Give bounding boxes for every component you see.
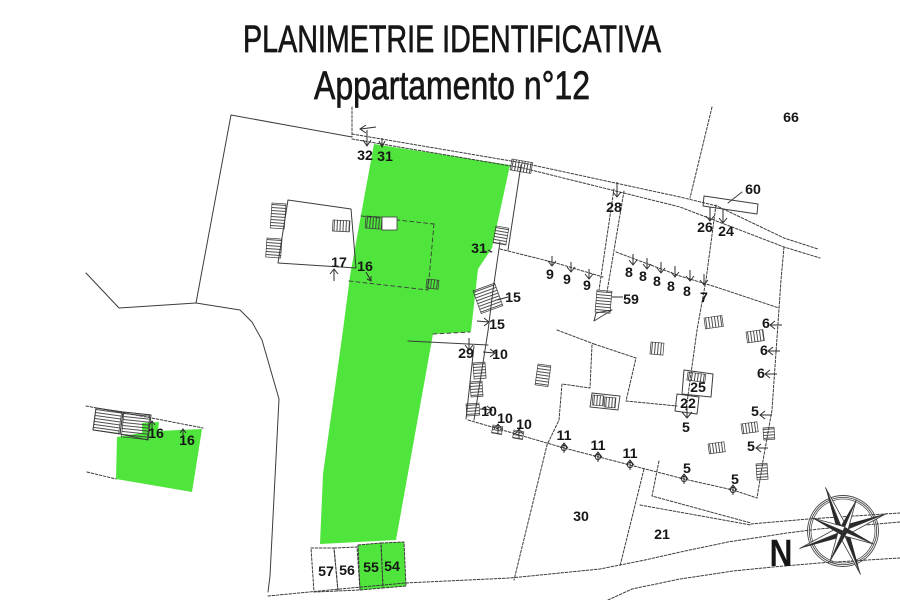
svg-text:22: 22 [680, 396, 696, 412]
svg-text:10: 10 [516, 417, 532, 433]
svg-text:Appartamento n°12: Appartamento n°12 [314, 64, 590, 108]
svg-text:16: 16 [179, 433, 195, 449]
svg-text:11: 11 [623, 446, 638, 462]
svg-text:N: N [770, 533, 793, 575]
svg-text:8: 8 [653, 274, 661, 290]
svg-text:9: 9 [563, 272, 571, 288]
svg-text:6: 6 [762, 316, 770, 332]
svg-text:10: 10 [481, 404, 497, 420]
svg-text:59: 59 [623, 292, 639, 308]
svg-text:31: 31 [377, 149, 393, 165]
svg-text:30: 30 [573, 509, 589, 525]
svg-text:9: 9 [546, 267, 554, 283]
svg-text:6: 6 [760, 343, 768, 359]
svg-text:PLANIMETRIE IDENTIFICATIVA: PLANIMETRIE IDENTIFICATIVA [243, 19, 661, 61]
svg-text:28: 28 [606, 200, 622, 216]
svg-text:25: 25 [690, 380, 706, 396]
svg-text:60: 60 [745, 182, 761, 198]
svg-text:5: 5 [751, 404, 759, 420]
svg-text:55: 55 [363, 560, 379, 576]
svg-text:8: 8 [625, 265, 633, 281]
svg-text:32: 32 [357, 148, 373, 164]
svg-text:8: 8 [667, 279, 675, 295]
svg-text:29: 29 [458, 346, 474, 362]
svg-text:57: 57 [318, 564, 334, 580]
svg-text:5: 5 [682, 420, 690, 436]
svg-text:54: 54 [384, 559, 400, 575]
svg-text:9: 9 [583, 278, 591, 294]
svg-text:26: 26 [697, 220, 713, 236]
svg-text:7: 7 [700, 290, 708, 306]
svg-text:11: 11 [557, 428, 572, 444]
svg-text:5: 5 [731, 472, 739, 488]
svg-text:17: 17 [331, 255, 347, 271]
svg-text:15: 15 [489, 317, 505, 333]
svg-text:6: 6 [757, 366, 765, 382]
svg-text:8: 8 [683, 284, 691, 300]
svg-text:16: 16 [357, 259, 373, 275]
svg-text:5: 5 [747, 439, 755, 455]
svg-text:5: 5 [683, 461, 691, 477]
svg-text:21: 21 [654, 527, 670, 543]
svg-text:15: 15 [505, 290, 521, 306]
svg-text:10: 10 [497, 411, 513, 427]
svg-text:10: 10 [492, 347, 508, 363]
svg-text:11: 11 [591, 438, 606, 454]
svg-text:24: 24 [718, 224, 734, 240]
svg-text:66: 66 [783, 110, 799, 126]
svg-text:16: 16 [148, 426, 164, 442]
svg-text:8: 8 [639, 269, 647, 285]
svg-text:31: 31 [471, 241, 487, 257]
svg-text:56: 56 [339, 563, 355, 579]
